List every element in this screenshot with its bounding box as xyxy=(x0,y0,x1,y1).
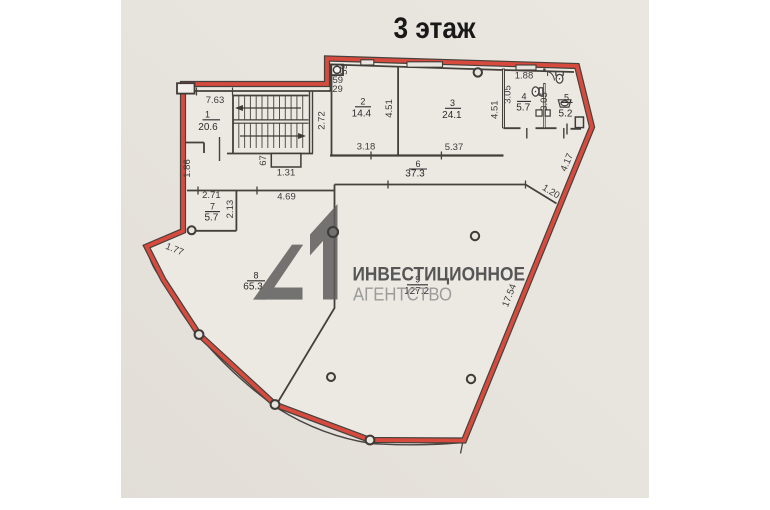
svg-text:5: 5 xyxy=(564,93,569,103)
svg-text:3 этаж: 3 этаж xyxy=(394,12,477,45)
svg-text:5.2: 5.2 xyxy=(559,109,573,120)
svg-text:59: 59 xyxy=(339,64,350,75)
svg-text:2: 2 xyxy=(360,97,365,107)
svg-text:24.1: 24.1 xyxy=(442,110,462,121)
svg-text:5.37: 5.37 xyxy=(445,142,464,153)
svg-text:АГЕНТСТВО: АГЕНТСТВО xyxy=(353,285,452,305)
svg-text:6: 6 xyxy=(415,159,420,169)
svg-text:7.63: 7.63 xyxy=(206,95,225,106)
svg-text:4: 4 xyxy=(521,92,526,102)
svg-text:2.13: 2.13 xyxy=(225,200,236,219)
svg-text:67: 67 xyxy=(258,155,269,166)
svg-text:1.31: 1.31 xyxy=(277,168,296,179)
svg-text:20.6: 20.6 xyxy=(198,122,218,133)
svg-text:3.18: 3.18 xyxy=(357,142,376,153)
svg-text:4.51: 4.51 xyxy=(384,99,395,118)
svg-text:1.88: 1.88 xyxy=(515,70,534,81)
svg-text:4.69: 4.69 xyxy=(277,192,296,203)
svg-text:37.3: 37.3 xyxy=(405,169,425,180)
svg-text:8: 8 xyxy=(253,271,258,281)
svg-text:3: 3 xyxy=(450,98,455,108)
svg-text:3.05: 3.05 xyxy=(539,92,550,111)
svg-text:5.7: 5.7 xyxy=(204,213,218,224)
svg-text:2.71: 2.71 xyxy=(202,190,221,201)
svg-text:29: 29 xyxy=(332,84,343,95)
svg-text:ИНВЕСТИЦИОННОЕ: ИНВЕСТИЦИОННОЕ xyxy=(353,265,526,286)
svg-text:1: 1 xyxy=(205,110,210,120)
svg-text:5.7: 5.7 xyxy=(516,103,530,114)
svg-text:14.4: 14.4 xyxy=(352,109,372,120)
svg-text:7: 7 xyxy=(210,202,215,212)
svg-text:4.51: 4.51 xyxy=(489,100,500,119)
svg-text:1.86: 1.86 xyxy=(182,159,193,178)
svg-text:2.72: 2.72 xyxy=(316,111,327,130)
svg-text:3.05: 3.05 xyxy=(503,85,514,104)
